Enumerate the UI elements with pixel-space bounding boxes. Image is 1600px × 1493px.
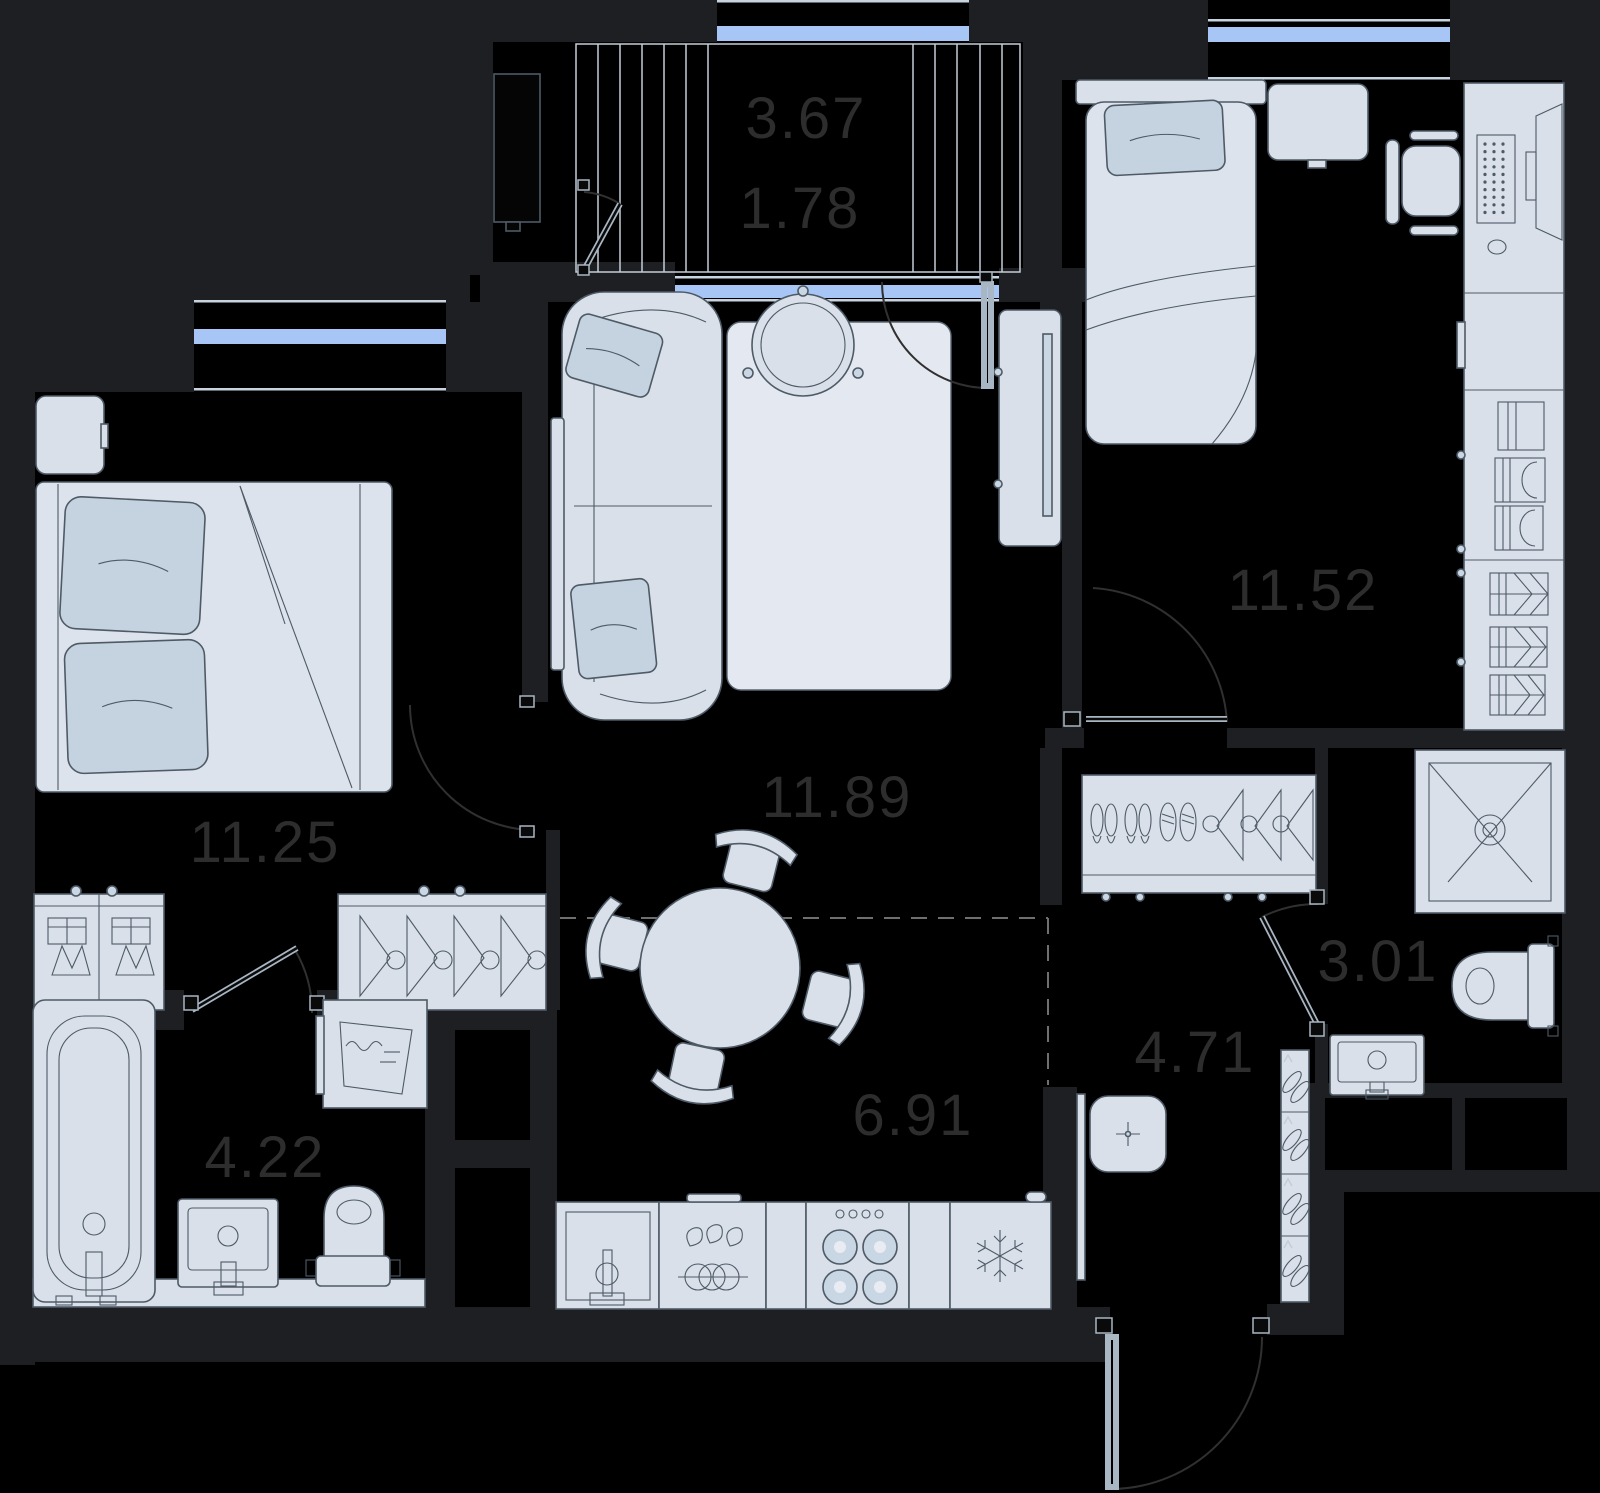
bathtub [33,1000,155,1305]
door-hinge [520,826,534,837]
room-loggia: 3.67 1.78 [494,44,1020,275]
toilet [306,1186,400,1286]
bedroom-2-door [1064,588,1227,726]
mirror [1077,1094,1085,1280]
room-area-label: 4.71 [1135,1020,1256,1085]
room-area-label: 3.01 [1318,929,1439,994]
window-loggia-outer [717,0,969,41]
room-area-label: 11.89 [762,765,913,830]
hall-wardrobe [1082,775,1316,901]
room-area-label: 11.52 [1228,558,1379,623]
shower-room-door [1262,890,1324,1036]
pillow [59,496,206,635]
room-area-label: 4.22 [205,1125,326,1190]
entrance-door [1096,1318,1269,1489]
window-loggia-inner [675,276,999,302]
toilet [1452,936,1558,1036]
cooktop [806,1202,909,1309]
room-bedroom-1: 11.25 [34,396,546,1013]
storage-cabinet [494,74,540,231]
shoe-rack [1280,1050,1312,1302]
double-bed [36,482,392,792]
window-bedroom-2 [1208,19,1450,80]
shaft [1465,1098,1567,1170]
dresser [36,396,108,474]
desk-chair [1386,131,1460,235]
counter [909,1202,950,1309]
cabinet-handle [1457,322,1465,368]
sofa [562,292,722,720]
pillow [64,639,208,774]
window-bedroom-1 [194,300,446,391]
kitchen-counter [556,1192,1051,1309]
shelving-unit [34,886,164,1010]
dining-table [640,888,800,1048]
dining-chair [705,822,800,898]
room-area-label: 6.91 [853,1083,974,1148]
nightstand [1268,84,1368,168]
room-bedroom-2: 11.52 [1064,80,1564,730]
kitchen-sink [556,1202,659,1309]
room-area-label: 11.25 [190,810,341,875]
counter [766,1202,806,1309]
room-kitchen: 6.91 [556,822,1051,1309]
pouf [1090,1096,1166,1172]
bedroom-1-door-arc [410,705,535,830]
room-area-label: 1.78 [740,176,861,241]
floor-plan-canvas: 3.67 1.78 [0,0,1600,1493]
tv-console [994,310,1061,546]
sofa-pillow [570,578,657,680]
door-hinge [520,696,534,707]
loggia-door [578,180,620,275]
desk [1457,83,1564,730]
shower-tray [1415,750,1565,913]
tv-bedroom-wall [551,418,564,670]
sink [1330,1035,1424,1099]
wardrobe [338,886,546,1010]
bathroom-door [184,948,324,1013]
room-bathroom: 4.22 [33,1000,427,1307]
shaft [1325,1098,1452,1170]
sink [178,1199,278,1295]
floor-plan: 3.67 1.78 [0,0,1600,1493]
washing-machine [316,1000,427,1108]
dining-chair [797,953,873,1048]
fridge [950,1192,1051,1309]
dining-table-set [578,822,872,1111]
single-bed [1076,80,1266,444]
room-area-label: 3.67 [746,86,867,151]
dishwasher [659,1194,766,1309]
dining-chair [648,1038,742,1111]
